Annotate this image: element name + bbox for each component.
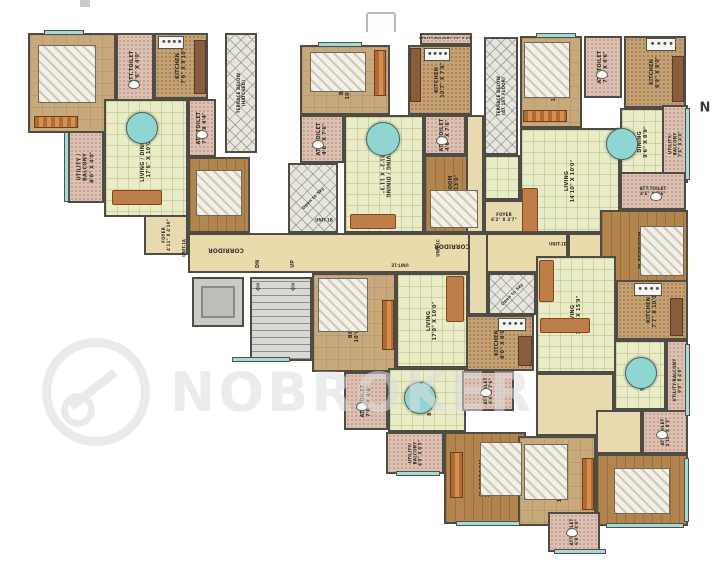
room-label: Open to Sky bbox=[301, 186, 325, 210]
room-utility-balcony-1b: UTILITY/BALCONY 4'0" X 9'0" bbox=[420, 33, 472, 45]
bed-icon bbox=[524, 42, 570, 98]
room-label: LIVING 14'10" X 10'0" bbox=[564, 159, 577, 202]
room-label: KITCHEN 6'9" X 8'0" bbox=[649, 56, 662, 88]
room-utility-balcony-1a: UTILITY / BALCONY 8'0" X 4'0" bbox=[68, 131, 104, 203]
ward-icon bbox=[450, 452, 463, 498]
wc-icon bbox=[436, 136, 448, 145]
bed-icon bbox=[640, 226, 684, 276]
counter-icon bbox=[410, 48, 421, 102]
bed-icon bbox=[430, 190, 478, 228]
counter-icon bbox=[672, 56, 684, 102]
room-open-to-sky-1d: Open to Sky bbox=[488, 273, 536, 315]
table-icon bbox=[606, 128, 638, 160]
sofa-icon bbox=[540, 318, 590, 333]
bed-icon bbox=[38, 45, 96, 103]
sofa-icon bbox=[539, 260, 554, 302]
stove-icon bbox=[646, 38, 676, 51]
room-att-toilet-1c-1: ATT.TOILET 7'6" X 4'6" bbox=[584, 36, 622, 98]
room-passage-1d-b bbox=[596, 410, 642, 454]
room-att-toilet-1e-1: ATT.TOILET 7'6" X 4'4" bbox=[344, 372, 388, 430]
window-strip bbox=[396, 471, 440, 476]
window-strip bbox=[606, 523, 684, 528]
room-corridor bbox=[188, 233, 568, 273]
counter-icon bbox=[518, 336, 532, 366]
bed-icon bbox=[196, 170, 242, 216]
room-terrace-1st-floor: TERRACE BELOW (AT 1ST FLOOR) bbox=[484, 37, 518, 155]
table-icon bbox=[404, 382, 436, 414]
window-strip bbox=[536, 33, 576, 38]
wc-icon bbox=[656, 430, 668, 439]
room-terrace-hatched: TERRACE BELOW (HATCHED) bbox=[225, 33, 257, 153]
wc-icon bbox=[128, 80, 140, 89]
stove-icon bbox=[498, 318, 526, 331]
sofa-icon bbox=[112, 190, 162, 205]
counter-icon bbox=[670, 298, 683, 336]
table-icon bbox=[366, 122, 400, 156]
wc-icon bbox=[312, 140, 324, 149]
bed-icon bbox=[480, 442, 522, 496]
watermark-key-logo-icon bbox=[42, 338, 150, 446]
room-att-toilet-1b-2: ATT.TOILET 4'6" X 7'6" bbox=[424, 115, 466, 155]
room-label: LIVING 17'0" X 10'0" bbox=[426, 301, 439, 340]
room-label: KITCHEN 7'6" X 9'10" bbox=[175, 48, 188, 83]
sofa-icon bbox=[522, 188, 538, 232]
window-strip bbox=[554, 549, 606, 554]
window-strip bbox=[685, 108, 690, 180]
window-strip bbox=[684, 458, 689, 522]
ward-icon bbox=[374, 50, 386, 96]
table-icon bbox=[126, 112, 158, 144]
wc-icon bbox=[480, 388, 492, 397]
room-att-toilet-1a-1: ATT.TOILET 7'6" X 4'0" bbox=[116, 33, 154, 101]
stove-icon bbox=[634, 283, 662, 296]
window-strip bbox=[232, 357, 290, 362]
room-label: TERRACE BELOW (HATCHED) bbox=[236, 73, 246, 113]
ward-icon bbox=[582, 458, 594, 510]
room-label: KITCHEN 8'0" X 8'0" bbox=[494, 327, 507, 359]
bed-icon bbox=[524, 444, 568, 500]
room-label: LIVING / DINING 21'2" X 11'3" bbox=[378, 150, 391, 198]
room-label: UTILITY/BALCONY 9'0" X 4'0" bbox=[672, 359, 682, 402]
room-foyer-1a: FOYER 4'11" X 4'10" bbox=[144, 215, 188, 255]
window-strip bbox=[44, 30, 84, 35]
stove-icon bbox=[424, 48, 450, 61]
room-staircase bbox=[250, 277, 312, 361]
top-notch-decoration bbox=[80, 0, 90, 7]
room-label: UTILITY / BALCONY 8'0" X 4'0" bbox=[77, 151, 96, 183]
room-lift: LIFT bbox=[192, 277, 244, 327]
floorplan-canvas: BEDROOM 12'0" X 10'0"ATT.TOILET 7'6" X 4… bbox=[0, 0, 718, 586]
window-strip bbox=[685, 344, 690, 416]
room-label: ATT.TOILET 7'6" X 4'0" bbox=[129, 50, 142, 83]
room-att-toilet-1c-2: ATT.TOILET 4'6" X 7'6" bbox=[620, 172, 686, 210]
sofa-icon bbox=[446, 276, 464, 322]
bed-icon bbox=[310, 52, 366, 92]
room-label: TERRACE BELOW (AT 1ST FLOOR) bbox=[496, 76, 506, 116]
ward-icon bbox=[34, 116, 78, 128]
wc-icon bbox=[196, 130, 208, 139]
room-label: FOYER 6'2" X 3'7" bbox=[491, 212, 517, 222]
room-label: ATT.TOILET 7'6" X 4'4" bbox=[360, 384, 373, 417]
room-att-toilet-1a-2: ATT.TOILET 7'4" X 4'4" bbox=[188, 99, 216, 157]
room-label: UTILITY/ BALCONY 7'6" X 4'0" bbox=[668, 131, 683, 157]
room-label: Open to Sky bbox=[500, 282, 524, 306]
room-label: ATT.TOILET 4'6" X 7'6" bbox=[439, 118, 452, 151]
room-att-toilet-1b-1: ATT.TOILET 4'6" X 7'6" bbox=[300, 115, 344, 163]
room-label: KITCHEN 7'7" X 10'0" bbox=[646, 292, 659, 327]
wc-icon bbox=[650, 192, 662, 201]
room-label: ATT.TOILET 7'4" X 4'4" bbox=[196, 111, 209, 144]
room-foyer-1c: FOYER 6'2" X 3'7" bbox=[484, 200, 524, 233]
room-label: DINING 9'6" X 8'9" bbox=[637, 126, 650, 158]
ward-icon bbox=[523, 110, 567, 122]
window-strip bbox=[318, 42, 362, 47]
bed-icon bbox=[614, 468, 670, 514]
bed-icon bbox=[318, 278, 368, 332]
room-passage-1c-b bbox=[484, 155, 520, 200]
room-utility-balcony-1e: UTILITY/ BALCONY 4'0" X 8'5" bbox=[386, 432, 444, 474]
room-open-to-sky-1b: Open to Sky bbox=[288, 163, 338, 233]
wc-icon bbox=[596, 70, 608, 79]
ward-icon bbox=[382, 300, 394, 350]
stove-icon bbox=[158, 36, 184, 49]
sofa-icon bbox=[350, 214, 396, 229]
wc-icon bbox=[566, 528, 578, 537]
table-icon bbox=[625, 357, 657, 389]
room-label: UTILITY/ BALCONY 4'0" X 8'5" bbox=[408, 440, 423, 466]
room-label: UTILITY/BALCONY 4'0" X 9'0" bbox=[419, 37, 473, 41]
room-label: ATT.TOILET 4'6" X 7'6" bbox=[316, 122, 329, 155]
window-strip bbox=[64, 132, 69, 202]
room-label: KITCHEN 10'7" X 7'6" bbox=[434, 62, 447, 97]
wc-icon bbox=[356, 402, 368, 411]
annotation-n: N bbox=[700, 101, 711, 116]
window-strip bbox=[456, 521, 520, 526]
room-entry-1e bbox=[468, 233, 488, 315]
room-label: LIFT bbox=[214, 294, 222, 309]
duct-shaft-tab bbox=[366, 12, 396, 32]
counter-icon bbox=[194, 40, 206, 94]
room-label: FOYER 4'11" X 4'10" bbox=[161, 219, 171, 251]
